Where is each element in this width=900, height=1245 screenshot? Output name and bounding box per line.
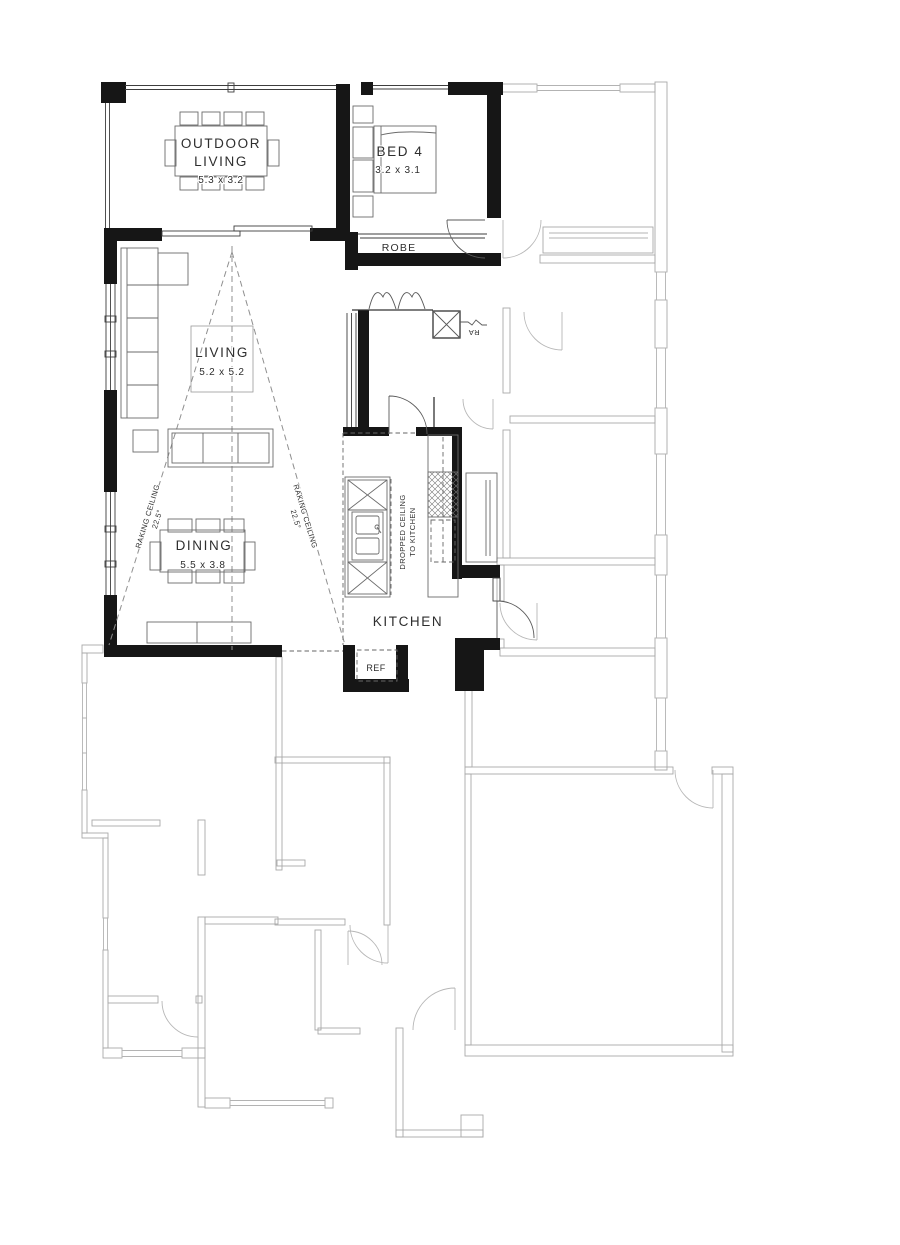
bedroom2-window <box>537 84 620 92</box>
ghost-structure <box>82 82 733 1137</box>
wall-niche <box>466 473 497 562</box>
side-table <box>133 430 158 452</box>
room-label-living: LIVING <box>195 345 249 360</box>
dropped-ceiling-line2: TO KITCHEN <box>408 507 417 556</box>
floor-plan-drawing: OUTDOOR LIVING 5.3 x 3.2 BED 4 3.2 x 3.1… <box>0 0 900 1245</box>
sink <box>352 512 383 560</box>
room-dims-outdoor-living: 5.3 x 3.2 <box>198 175 244 186</box>
kitchen-rear-jamb <box>493 578 500 601</box>
room-label-dining: DINING <box>176 538 233 553</box>
dropped-ceiling-line1: DROPPED CEILING <box>398 494 407 569</box>
room-label-outdoor-living-line2: LIVING <box>194 154 248 169</box>
room-dims-living: 5.2 x 5.2 <box>199 367 245 378</box>
sliding-door-panel <box>162 231 240 236</box>
cooktop <box>428 472 458 517</box>
bifold-doors <box>369 293 425 309</box>
ghost-windows <box>82 683 325 1108</box>
fridge-label: REF <box>366 663 385 673</box>
buffet <box>147 622 251 643</box>
sofa <box>121 248 188 418</box>
return-air-label: RA <box>468 328 479 337</box>
furniture <box>121 106 497 643</box>
room-label-outdoor-living-line1: OUTDOOR <box>181 136 261 151</box>
sliding-door-panel <box>234 226 312 231</box>
main-walls <box>101 82 503 692</box>
room-dims-bed4: 3.2 x 3.1 <box>375 165 421 176</box>
bed <box>353 106 436 217</box>
kitchen-island <box>345 477 390 597</box>
right-wall-windows <box>655 272 667 751</box>
robe-slider <box>358 234 487 238</box>
room-dims-dining: 5.5 x 3.8 <box>180 560 226 571</box>
room-label-kitchen: KITCHEN <box>373 614 443 629</box>
room-label-bed4: BED 4 <box>376 144 423 159</box>
porch-pier <box>461 1115 483 1137</box>
floor-plan-page: OUTDOOR LIVING 5.3 x 3.2 BED 4 3.2 x 3.1… <box>0 0 900 1245</box>
raking-ceiling-right-annotation: RAKING CEILING 22.5° <box>282 483 320 552</box>
coffee-table <box>168 429 273 467</box>
robe-label: ROBE <box>382 242 417 254</box>
